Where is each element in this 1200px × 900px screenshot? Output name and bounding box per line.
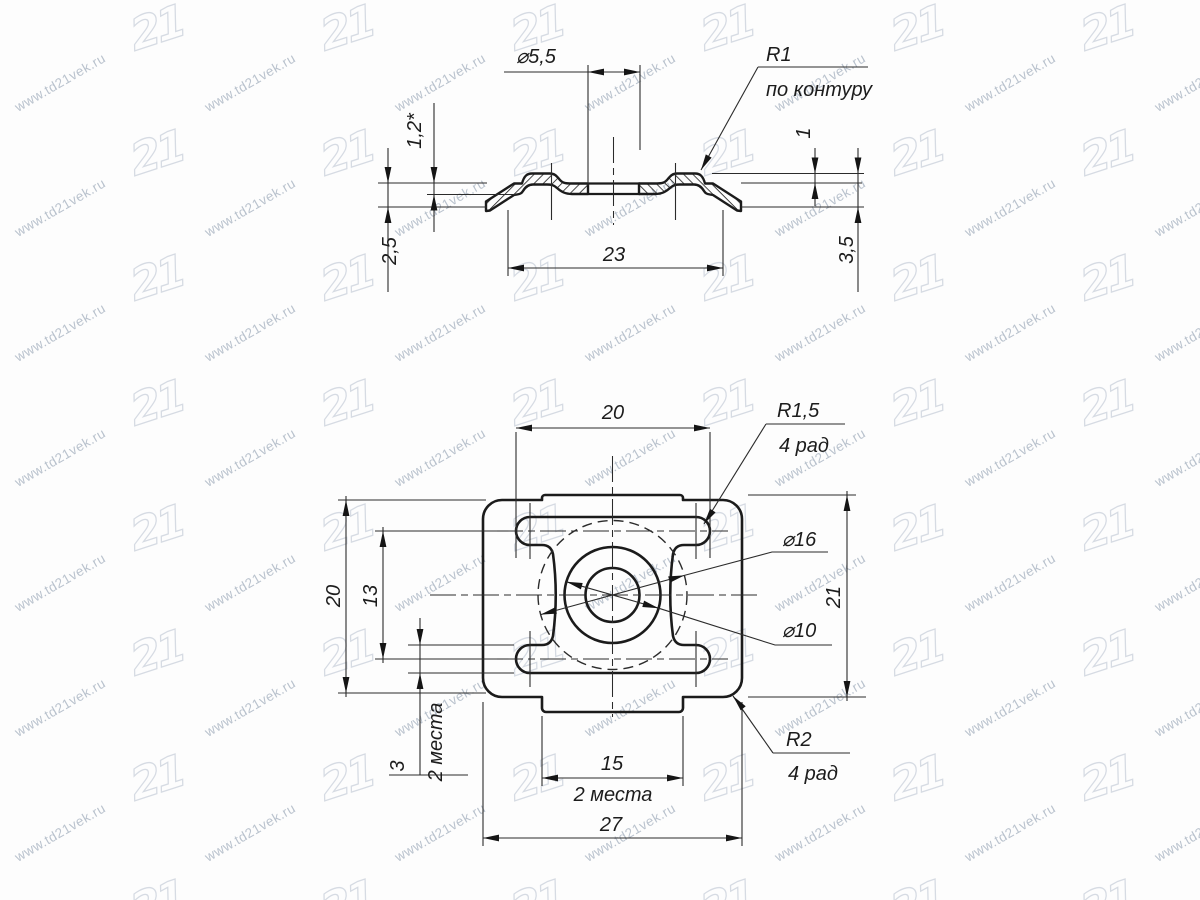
technical-drawing: ⌀5,5 1,2* 2,5 1 3,5 23 R1 bbox=[0, 0, 1200, 900]
dim-dia10: ⌀10 bbox=[782, 620, 816, 642]
leader-arrow-r1 bbox=[701, 154, 712, 170]
dim-radius-r1: R1 bbox=[766, 44, 792, 66]
dim-bump-height: 1 bbox=[793, 127, 815, 138]
plan-view: 20 R1,5 4 рад ⌀16 ⌀10 20 bbox=[323, 400, 866, 846]
dim-overall-width: 27 bbox=[599, 814, 623, 836]
dim-thickness: 1,2* bbox=[404, 112, 426, 149]
dim-corner-radius: R2 bbox=[786, 729, 812, 751]
dim-slot-height: 3 bbox=[387, 760, 409, 771]
leader-arrow-r2 bbox=[733, 696, 746, 710]
dim-overall-height: 21 bbox=[823, 586, 845, 609]
dim-slot-height-note: 2 места bbox=[425, 703, 447, 783]
dim-ring-width: 23 bbox=[602, 244, 625, 266]
leader-line-r15 bbox=[704, 424, 766, 524]
dim-tab-width: 15 bbox=[601, 753, 624, 775]
dim-corner-radius-note: 4 рад bbox=[788, 763, 838, 785]
dim-left-height: 2,5 bbox=[379, 236, 401, 266]
dim-hole-diameter: ⌀5,5 bbox=[516, 46, 557, 68]
section-profile-left bbox=[486, 174, 588, 212]
dim-slot-distance: 13 bbox=[360, 585, 382, 607]
leader-line-d16 bbox=[541, 552, 828, 615]
dim-radius-r1-note: по контуру bbox=[766, 79, 873, 101]
leader-line-r1 bbox=[701, 67, 758, 170]
dim-dia16: ⌀16 bbox=[782, 529, 817, 551]
section-view: ⌀5,5 1,2* 2,5 1 3,5 23 R1 bbox=[378, 44, 873, 292]
dim-cap-radius: R1,5 bbox=[777, 400, 820, 422]
dim-total-height: 3,5 bbox=[836, 235, 858, 264]
dim-cap-radius-note: 4 рад bbox=[779, 435, 829, 457]
section-profile-right bbox=[639, 174, 741, 212]
dim-body-height-left: 20 bbox=[323, 585, 345, 608]
drawing-canvas: www.td21vek.ru21www.td21vek.ru21www.td21… bbox=[0, 0, 1200, 900]
dim-slot-span: 20 bbox=[601, 402, 624, 424]
dim-tab-width-note: 2 места bbox=[573, 784, 653, 806]
